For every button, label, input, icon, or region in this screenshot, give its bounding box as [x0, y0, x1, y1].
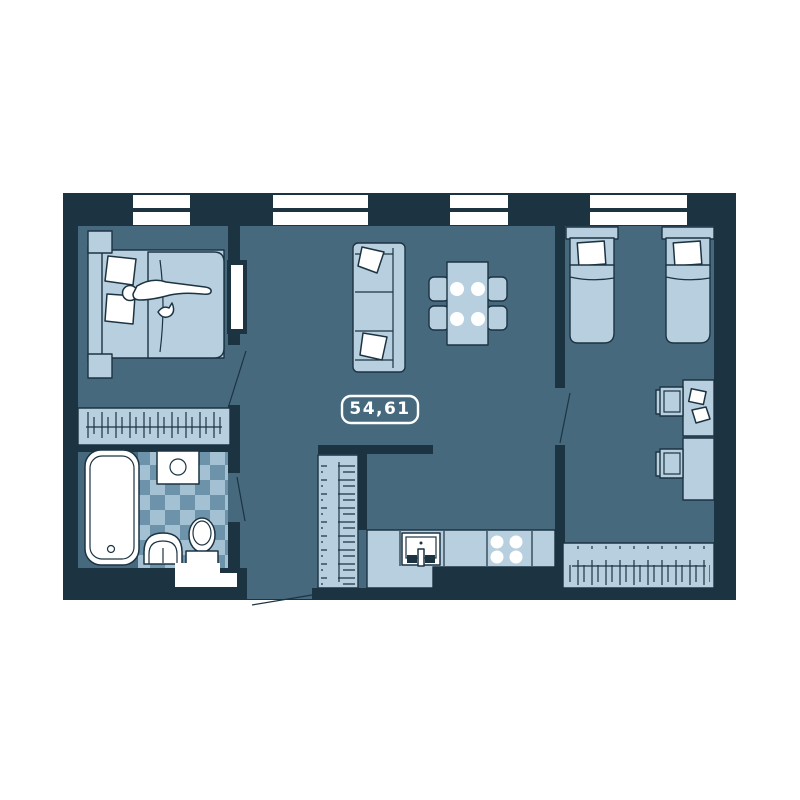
nightstand-top	[88, 231, 112, 253]
wall-mirror	[227, 260, 247, 334]
double-bed	[88, 247, 224, 361]
hall-closet-hangers	[318, 455, 358, 588]
sofa	[353, 243, 405, 372]
single-bed-2	[662, 227, 714, 343]
entrance-opening	[247, 588, 312, 599]
wardrobe-hangers-right	[563, 543, 714, 588]
desk-2	[683, 438, 714, 500]
floor-plan-canvas: 54,61	[0, 0, 800, 800]
single-bed-1	[566, 227, 618, 343]
toilet	[186, 518, 218, 565]
bathroom-sink	[144, 533, 182, 564]
floor-plan-drawing: 54,61	[0, 0, 800, 800]
area-label: 54,61	[342, 396, 418, 423]
washing-machine	[157, 451, 199, 484]
desk-1	[683, 380, 714, 436]
desk-chair-2	[656, 449, 683, 478]
kitchen-sink	[402, 533, 440, 566]
bathtub	[85, 450, 139, 565]
nightstand-bottom	[88, 354, 112, 378]
wardrobe-hangers-left	[78, 408, 230, 445]
dining-table	[447, 262, 488, 345]
desk-chair-1	[656, 387, 683, 416]
area-label-text: 54,61	[349, 399, 410, 419]
